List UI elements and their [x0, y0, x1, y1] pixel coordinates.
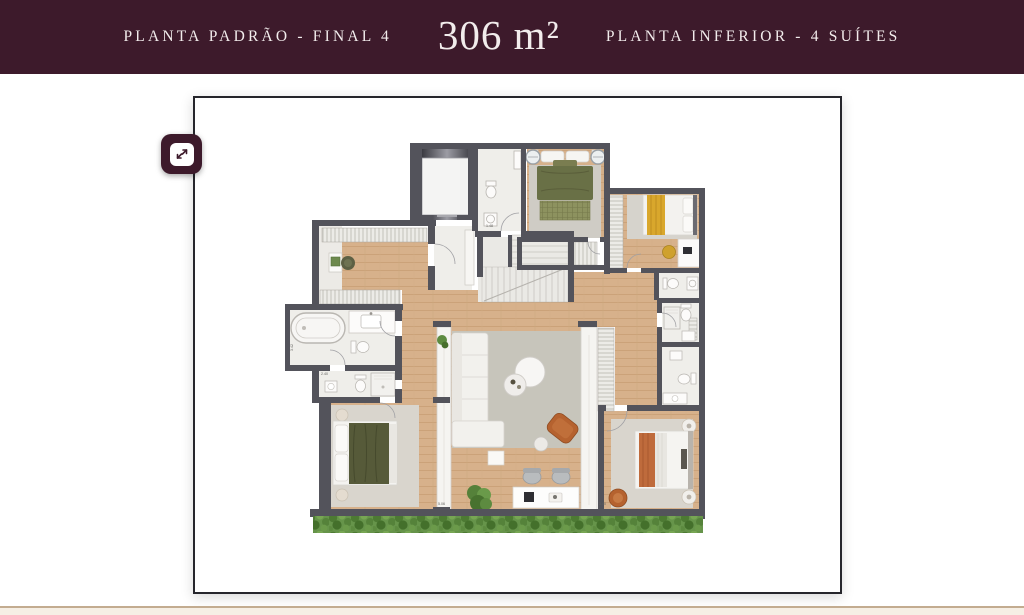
- plan-card: 5.06 3.40 2.40 3.42 1.48: [193, 96, 842, 594]
- floorplan-image: 5.06 3.40 2.40 3.42 1.48: [285, 135, 715, 535]
- area-label: 306 m²: [438, 11, 560, 59]
- elevator-icon: [416, 149, 472, 220]
- garden-hedge-icon: [313, 516, 703, 533]
- dimension-label: 5.06: [438, 502, 445, 506]
- title-bar: PLANTA PADRÃO - FINAL 4 306 m² PLANTA IN…: [0, 0, 1024, 74]
- expand-button[interactable]: [161, 134, 202, 174]
- vestibule-cabinet: [465, 230, 474, 285]
- floor-level-label: PLANTA INFERIOR - 4 SUÍTES: [606, 28, 901, 46]
- dimension-label: 1.48: [486, 224, 493, 228]
- plan-type-label: PLANTA PADRÃO - FINAL 4: [123, 28, 391, 46]
- bottom-divider: [0, 606, 1024, 615]
- dimension-label: 3.40: [599, 502, 606, 506]
- dimension-label: 2.40: [321, 372, 328, 376]
- dimension-label: 3.42: [290, 344, 294, 351]
- expand-icon: [170, 143, 194, 166]
